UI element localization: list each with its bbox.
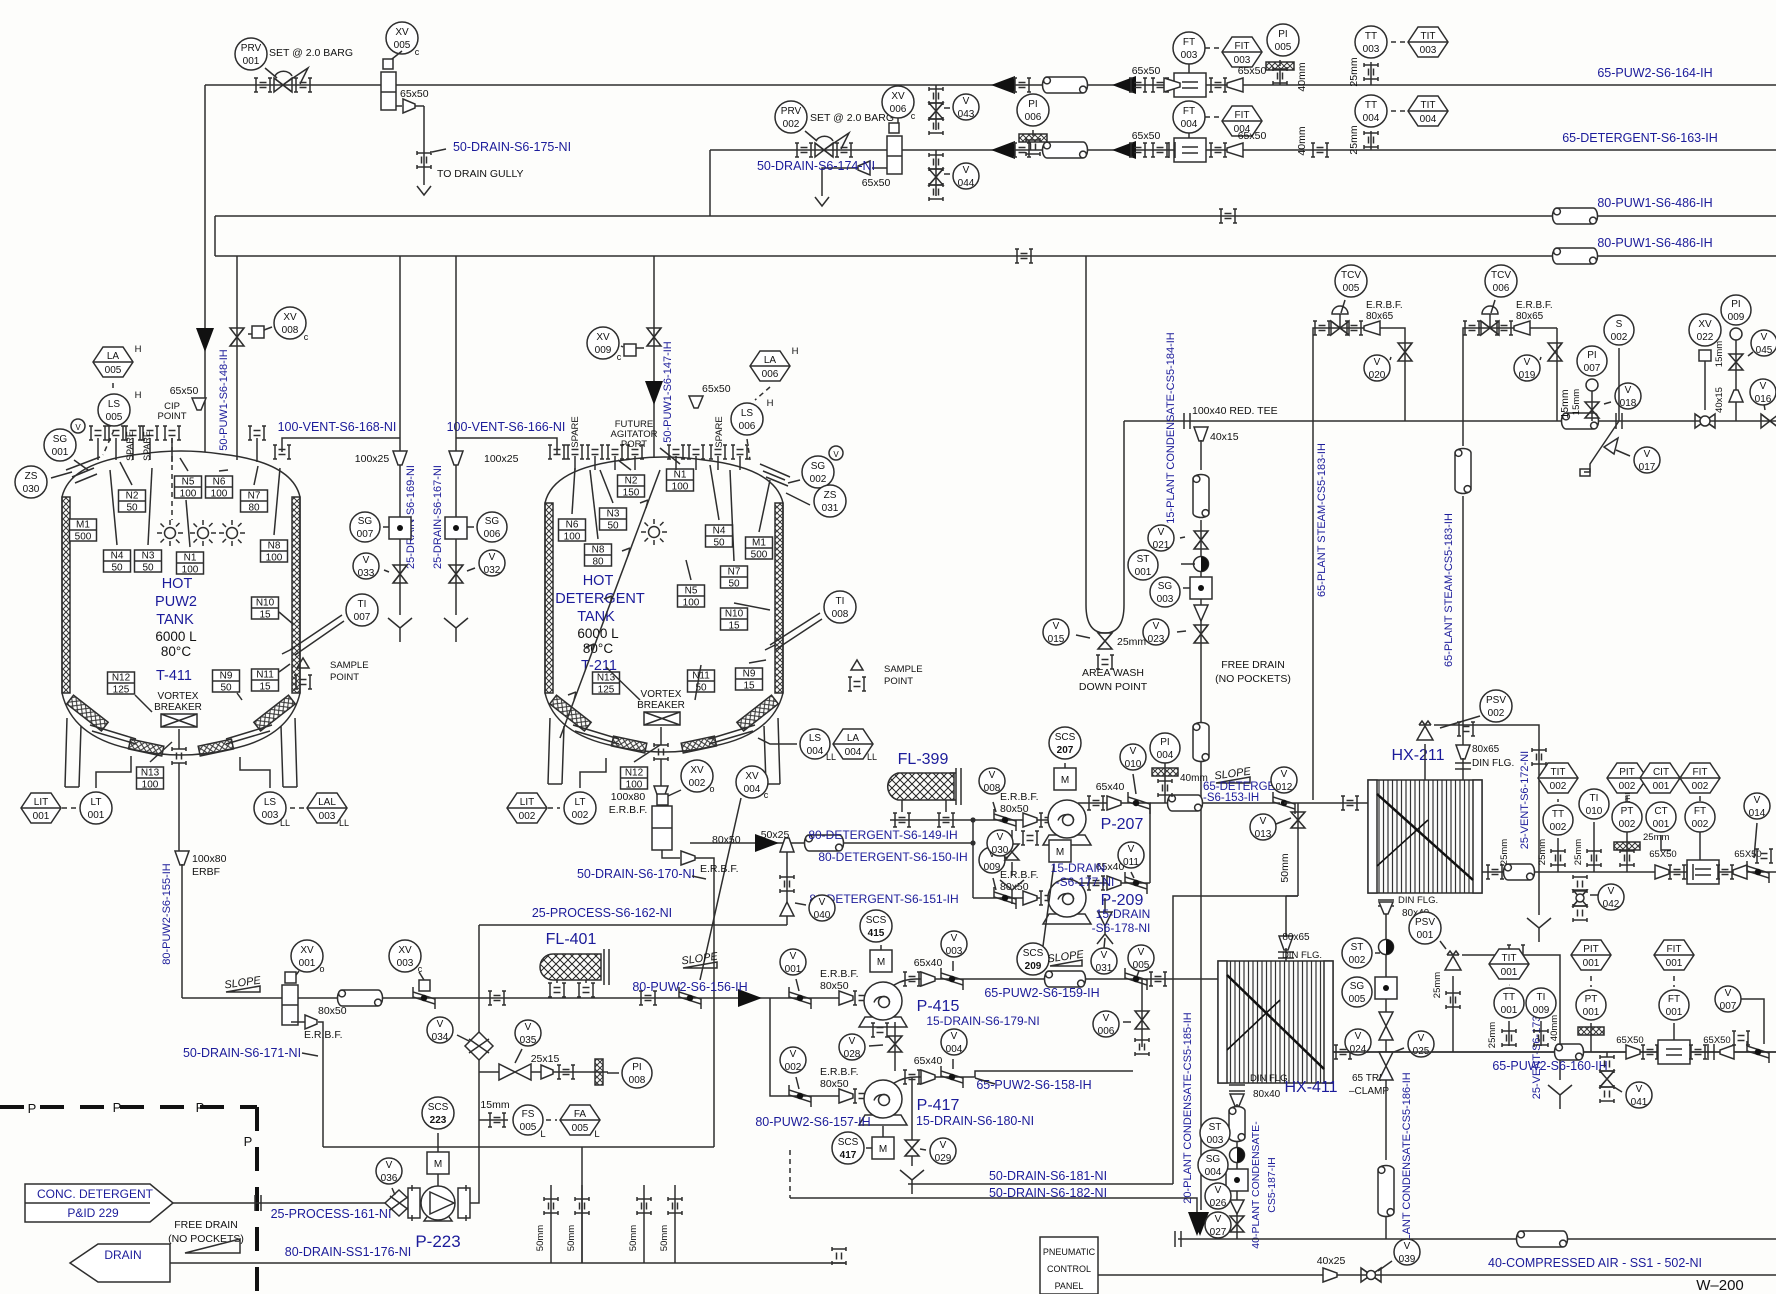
svg-text:013: 013 — [1255, 829, 1272, 840]
svg-text:50mm: 50mm — [535, 1225, 546, 1251]
svg-text:006: 006 — [1025, 112, 1042, 123]
svg-text:PI: PI — [632, 1062, 641, 1073]
svg-text:SG: SG — [1350, 981, 1365, 992]
svg-text:100-VENT-S6-166-NI: 100-VENT-S6-166-NI — [447, 420, 566, 434]
svg-text:80x50: 80x50 — [318, 1005, 347, 1017]
svg-text:100: 100 — [180, 489, 197, 500]
svg-text:L: L — [540, 1129, 545, 1140]
svg-text:100: 100 — [626, 780, 643, 791]
svg-text:FS: FS — [522, 1109, 535, 1120]
svg-text:65x50: 65x50 — [702, 383, 731, 395]
svg-text:100: 100 — [211, 489, 228, 500]
svg-text:V: V — [997, 832, 1004, 843]
svg-text:VORTEX: VORTEX — [158, 691, 199, 702]
svg-text:100: 100 — [142, 780, 159, 791]
svg-text:LA: LA — [847, 733, 860, 744]
svg-text:c: c — [911, 111, 916, 121]
svg-text:40mm: 40mm — [1296, 62, 1308, 91]
svg-text:004: 004 — [1420, 114, 1437, 125]
svg-text:V: V — [363, 555, 370, 566]
svg-text:044: 044 — [958, 178, 975, 189]
svg-text:001: 001 — [1583, 1007, 1600, 1018]
svg-text:FA: FA — [574, 1109, 587, 1120]
svg-text:V: V — [1158, 527, 1165, 538]
svg-text:042: 042 — [1603, 899, 1620, 910]
svg-text:XV: XV — [398, 945, 412, 956]
svg-text:65x50: 65x50 — [1132, 65, 1161, 77]
svg-text:65-PUW2-S6-160-IH: 65-PUW2-S6-160-IH — [1492, 1059, 1607, 1073]
svg-text:o: o — [709, 784, 714, 794]
svg-text:80-PUW2-S6-156-IH: 80-PUW2-S6-156-IH — [632, 980, 747, 994]
svg-text:001: 001 — [1417, 930, 1434, 941]
svg-text:P-207: P-207 — [1101, 816, 1144, 833]
svg-text:020: 020 — [1369, 370, 1386, 381]
svg-text:80-DRAIN-SS1-176-NI: 80-DRAIN-SS1-176-NI — [285, 1245, 411, 1259]
svg-text:002: 002 — [1692, 781, 1709, 792]
svg-text:V: V — [1215, 1185, 1222, 1196]
svg-text:TIT: TIT — [1502, 953, 1517, 964]
svg-text:P: P — [244, 1134, 253, 1149]
svg-text:004: 004 — [807, 746, 824, 757]
svg-text:002: 002 — [810, 474, 827, 485]
svg-text:001: 001 — [1666, 958, 1683, 969]
svg-text:005: 005 — [394, 40, 411, 51]
svg-text:LS: LS — [108, 399, 121, 410]
svg-text:V: V — [1524, 357, 1531, 368]
svg-text:PI: PI — [1731, 299, 1740, 310]
svg-text:TI: TI — [836, 596, 845, 607]
svg-text:N2: N2 — [625, 476, 638, 487]
svg-text:TCV: TCV — [1491, 270, 1511, 281]
svg-text:65-PLANT STEAM-CS5-183-IH: 65-PLANT STEAM-CS5-183-IH — [1316, 443, 1328, 597]
svg-text:LA: LA — [107, 351, 120, 362]
svg-text:007: 007 — [354, 612, 371, 623]
svg-text:024: 024 — [1350, 1044, 1367, 1055]
svg-text:010: 010 — [1586, 806, 1603, 817]
svg-text:FT: FT — [1668, 994, 1680, 1005]
svg-text:022: 022 — [1697, 332, 1714, 343]
svg-text:FT: FT — [1183, 37, 1195, 48]
svg-text:TI: TI — [1590, 793, 1599, 804]
svg-text:006: 006 — [1098, 1026, 1115, 1037]
svg-text:65-PUW2-S6-158-IH: 65-PUW2-S6-158-IH — [976, 1078, 1091, 1092]
svg-text:006: 006 — [762, 369, 779, 380]
svg-text:XV: XV — [283, 312, 297, 323]
svg-text:010: 010 — [1125, 759, 1142, 770]
svg-text:HOT: HOT — [583, 573, 614, 589]
svg-text:E.R.B.F.: E.R.B.F. — [609, 804, 648, 816]
svg-text:N11: N11 — [692, 671, 710, 682]
svg-text:N1: N1 — [674, 470, 687, 481]
svg-text:40-COMPRESSED AIR - SS1 - 502-: 40-COMPRESSED AIR - SS1 - 502-NI — [1488, 1256, 1702, 1270]
svg-text:50mm: 50mm — [628, 1225, 639, 1251]
svg-text:ZS: ZS — [25, 471, 38, 482]
svg-text:FIT: FIT — [1235, 41, 1250, 52]
svg-text:N13: N13 — [141, 768, 160, 779]
svg-text:V: V — [437, 1019, 444, 1030]
svg-text:80: 80 — [592, 557, 604, 568]
svg-text:DETERGENT: DETERGENT — [555, 591, 645, 607]
svg-text:TIT: TIT — [1551, 767, 1566, 778]
svg-text:V: V — [963, 96, 970, 107]
svg-text:031: 031 — [1096, 963, 1113, 974]
svg-text:65x50: 65x50 — [1238, 130, 1267, 142]
svg-text:006: 006 — [484, 529, 501, 540]
svg-text:25mm: 25mm — [1432, 972, 1443, 998]
svg-text:V: V — [1404, 1241, 1411, 1252]
svg-text:008: 008 — [984, 783, 1001, 794]
svg-text:15-DRAIN-S6-180-NI: 15-DRAIN-S6-180-NI — [916, 1114, 1034, 1128]
svg-text:N5: N5 — [182, 477, 195, 488]
svg-text:XV: XV — [690, 765, 704, 776]
svg-text:XV: XV — [1698, 319, 1712, 330]
svg-text:100-VENT-S6-168-NI: 100-VENT-S6-168-NI — [278, 420, 397, 434]
svg-text:M: M — [434, 1159, 442, 1170]
svg-text:25mm: 25mm — [1487, 1022, 1498, 1048]
svg-text:25mm: 25mm — [1348, 57, 1360, 86]
svg-text:50: 50 — [111, 563, 123, 574]
svg-text:PRV: PRV — [241, 43, 262, 54]
svg-text:019: 019 — [1519, 370, 1536, 381]
svg-text:L: L — [594, 1129, 599, 1140]
svg-text:031: 031 — [822, 503, 839, 514]
svg-text:CONTROL: CONTROL — [1047, 1264, 1091, 1274]
svg-text:80-PUW2-S6-155-IH: 80-PUW2-S6-155-IH — [161, 863, 173, 965]
svg-text:20-PLANT CONDENSATE-CS5-185-IH: 20-PLANT CONDENSATE-CS5-185-IH — [1182, 1012, 1194, 1204]
svg-text:029: 029 — [935, 1153, 952, 1164]
svg-text:002: 002 — [1349, 955, 1366, 966]
svg-text:100: 100 — [564, 532, 581, 543]
svg-text:M: M — [1056, 847, 1064, 858]
svg-text:50: 50 — [126, 503, 138, 514]
svg-text:001: 001 — [1501, 1005, 1518, 1016]
svg-text:P-223: P-223 — [415, 1232, 460, 1251]
svg-text:PI: PI — [1028, 99, 1037, 110]
svg-text:25-DRAIN-S6-167-NI: 25-DRAIN-S6-167-NI — [432, 465, 444, 569]
svg-text:15: 15 — [259, 610, 271, 621]
svg-text:P&ID 229: P&ID 229 — [67, 1206, 119, 1220]
svg-text:65x40: 65x40 — [914, 957, 943, 969]
svg-text:50: 50 — [607, 521, 619, 532]
svg-text:M1: M1 — [76, 520, 90, 531]
svg-text:N11: N11 — [256, 670, 274, 681]
svg-text:15mm: 15mm — [1571, 389, 1582, 415]
svg-text:CIT: CIT — [1653, 767, 1669, 778]
svg-text:HOT: HOT — [162, 576, 193, 592]
svg-text:80°C: 80°C — [583, 641, 613, 656]
svg-text:041: 041 — [1631, 1097, 1648, 1108]
svg-text:005: 005 — [105, 365, 122, 376]
svg-text:SG: SG — [358, 516, 373, 527]
svg-text:DIN FLG.: DIN FLG. — [1472, 758, 1514, 769]
svg-text:PANEL: PANEL — [1055, 1281, 1084, 1291]
svg-text:50mm: 50mm — [566, 1225, 577, 1251]
svg-text:125: 125 — [598, 685, 615, 696]
svg-text:009: 009 — [595, 345, 612, 356]
svg-text:006: 006 — [1493, 283, 1510, 294]
svg-text:014: 014 — [1749, 808, 1766, 819]
svg-text:50-DRAIN-S6-182-NI: 50-DRAIN-S6-182-NI — [989, 1186, 1107, 1200]
svg-text:500: 500 — [75, 532, 92, 543]
svg-text:50: 50 — [142, 563, 154, 574]
svg-text:043: 043 — [958, 109, 975, 120]
svg-text:004: 004 — [1181, 119, 1198, 130]
svg-text:026: 026 — [1210, 1198, 1227, 1209]
svg-text:006: 006 — [890, 104, 907, 115]
svg-text:LS: LS — [264, 797, 277, 808]
svg-text:E.R.B.F.: E.R.B.F. — [700, 863, 739, 875]
svg-text:023: 023 — [1148, 634, 1165, 645]
svg-text:15: 15 — [259, 682, 271, 693]
svg-text:80-DETERGENT-S6-149-IH: 80-DETERGENT-S6-149-IH — [808, 828, 957, 842]
svg-text:50-DRAIN-S6-181-NI: 50-DRAIN-S6-181-NI — [989, 1169, 1107, 1183]
svg-text:c: c — [304, 332, 309, 342]
svg-text:c: c — [418, 964, 423, 974]
svg-text:T-411: T-411 — [156, 668, 192, 684]
svg-text:001: 001 — [33, 811, 50, 822]
svg-text:50: 50 — [220, 683, 232, 694]
svg-text:002: 002 — [572, 810, 589, 821]
svg-text:003: 003 — [946, 946, 963, 957]
svg-text:-S6-177-NI: -S6-177-NI — [1056, 875, 1115, 889]
svg-text:TT: TT — [1365, 31, 1377, 42]
svg-text:V: V — [989, 770, 996, 781]
svg-text:033: 033 — [358, 568, 375, 579]
svg-text:E.R.B.F.: E.R.B.F. — [1366, 300, 1403, 311]
svg-text:V: V — [790, 1049, 797, 1060]
svg-text:POINT: POINT — [884, 676, 913, 687]
svg-text:045: 045 — [1756, 345, 1773, 356]
svg-text:003: 003 — [1363, 44, 1380, 55]
svg-text:SCS: SCS — [1023, 948, 1044, 959]
svg-text:N10: N10 — [256, 598, 275, 609]
svg-text:65x50: 65x50 — [170, 385, 199, 397]
svg-text:80-PUW1-S6-486-IH: 80-PUW1-S6-486-IH — [1597, 236, 1712, 250]
svg-text:008: 008 — [832, 609, 849, 620]
svg-text:SCS: SCS — [428, 1102, 449, 1113]
svg-text:417: 417 — [840, 1150, 857, 1161]
svg-text:040: 040 — [814, 910, 831, 921]
svg-text:H: H — [767, 398, 774, 409]
svg-text:V: V — [1130, 746, 1137, 757]
svg-text:M: M — [1061, 775, 1069, 786]
svg-text:25-VENT-S6-172-NI: 25-VENT-S6-172-NI — [1519, 751, 1531, 849]
svg-text:003: 003 — [1157, 594, 1174, 605]
svg-text:-S6-153-IH: -S6-153-IH — [1203, 792, 1259, 804]
svg-text:005: 005 — [1133, 960, 1150, 971]
svg-text:25-PROCESS-161-NI: 25-PROCESS-161-NI — [271, 1207, 392, 1221]
svg-text:002: 002 — [785, 1062, 802, 1073]
svg-text:002: 002 — [783, 119, 800, 130]
svg-text:N9: N9 — [743, 669, 756, 680]
svg-text:TT: TT — [1552, 809, 1564, 820]
svg-text:V: V — [951, 933, 958, 944]
svg-text:SG: SG — [53, 434, 68, 445]
svg-text:PORT: PORT — [621, 439, 647, 450]
svg-text:004: 004 — [845, 747, 862, 758]
svg-text:005: 005 — [520, 1122, 537, 1133]
svg-text:V: V — [1128, 844, 1135, 855]
svg-text:FT: FT — [1694, 806, 1706, 817]
svg-text:50: 50 — [728, 579, 740, 590]
svg-text:V: V — [1418, 1033, 1425, 1044]
svg-text:PT: PT — [1585, 994, 1598, 1005]
svg-text:LIT: LIT — [520, 797, 534, 808]
svg-text:003: 003 — [397, 958, 414, 969]
svg-text:002: 002 — [1550, 822, 1567, 833]
svg-text:50x25: 50x25 — [761, 829, 790, 841]
svg-text:80x65: 80x65 — [1472, 744, 1500, 755]
svg-text:100x25: 100x25 — [355, 453, 390, 465]
svg-text:002: 002 — [1692, 819, 1709, 830]
svg-text:N1: N1 — [184, 553, 197, 564]
svg-text:50: 50 — [713, 538, 725, 549]
svg-text:PI: PI — [1587, 350, 1596, 361]
svg-text:E.R.B.F.: E.R.B.F. — [1516, 300, 1553, 311]
svg-text:030: 030 — [23, 484, 40, 495]
svg-text:100x80: 100x80 — [192, 853, 227, 865]
svg-text:005: 005 — [1349, 994, 1366, 1005]
svg-text:LT: LT — [575, 797, 586, 808]
svg-text:011: 011 — [1123, 857, 1139, 868]
svg-text:002: 002 — [519, 811, 536, 822]
svg-text:XV: XV — [395, 27, 409, 38]
svg-text:002: 002 — [1488, 708, 1505, 719]
svg-text:SCS: SCS — [1055, 732, 1076, 743]
svg-text:100: 100 — [683, 598, 700, 609]
svg-text:XV: XV — [745, 771, 759, 782]
svg-text:65X50: 65X50 — [1616, 1035, 1643, 1046]
svg-text:E.R.B.F.: E.R.B.F. — [1000, 791, 1039, 803]
svg-text:V: V — [1215, 1214, 1222, 1225]
svg-text:150: 150 — [623, 488, 640, 499]
svg-text:032: 032 — [484, 565, 501, 576]
svg-text:005: 005 — [1343, 283, 1360, 294]
svg-text:SET @ 2.0 BARG: SET @ 2.0 BARG — [269, 47, 353, 59]
svg-text:009: 009 — [984, 862, 1001, 873]
svg-text:001: 001 — [1666, 1007, 1683, 1018]
svg-text:004: 004 — [1205, 1167, 1222, 1178]
svg-text:100x80: 100x80 — [611, 791, 646, 803]
svg-text:002: 002 — [1619, 819, 1636, 830]
svg-text:N3: N3 — [607, 509, 620, 520]
svg-text:004: 004 — [1157, 750, 1174, 761]
svg-text:001: 001 — [1501, 967, 1518, 978]
svg-text:039: 039 — [1399, 1254, 1416, 1265]
svg-text:65x50: 65x50 — [1132, 130, 1161, 142]
svg-text:500: 500 — [751, 550, 768, 561]
svg-text:223: 223 — [430, 1115, 447, 1126]
svg-text:V: V — [790, 951, 797, 962]
svg-text:DIN FLG.: DIN FLG. — [1398, 895, 1438, 906]
svg-text:008: 008 — [282, 325, 299, 336]
svg-text:ST: ST — [1209, 1122, 1222, 1133]
svg-text:PIT: PIT — [1619, 767, 1635, 778]
svg-text:N10: N10 — [725, 609, 744, 620]
svg-text:50-DRAIN-S6-171-NI: 50-DRAIN-S6-171-NI — [183, 1046, 301, 1060]
svg-text:003: 003 — [319, 811, 336, 822]
svg-text:6000 L: 6000 L — [155, 629, 197, 644]
svg-text:FIT: FIT — [1235, 110, 1250, 121]
svg-text:V: V — [1636, 1084, 1643, 1095]
svg-text:BREAKER: BREAKER — [154, 702, 202, 713]
svg-text:15: 15 — [743, 681, 755, 692]
svg-text:N9: N9 — [220, 671, 233, 682]
svg-text:80: 80 — [248, 503, 260, 514]
svg-text:15-DRAIN-S6-179-NI: 15-DRAIN-S6-179-NI — [926, 1014, 1039, 1028]
svg-text:80-DETERGENT-S6-150-IH: 80-DETERGENT-S6-150-IH — [818, 850, 967, 864]
svg-text:15mm: 15mm — [1559, 389, 1571, 418]
svg-text:E.R.B.F.: E.R.B.F. — [304, 1029, 343, 1041]
svg-text:65-PUW2-S6-159-IH: 65-PUW2-S6-159-IH — [984, 986, 1099, 1000]
svg-text:POINT: POINT — [330, 672, 359, 683]
svg-text:018: 018 — [1620, 398, 1637, 409]
svg-text:N8: N8 — [592, 545, 605, 556]
svg-text:80-PUW1-S6-486-IH: 80-PUW1-S6-486-IH — [1597, 196, 1712, 210]
svg-text:50-PUW1-S6-147-IH: 50-PUW1-S6-147-IH — [662, 341, 674, 443]
svg-text:LL: LL — [867, 752, 877, 762]
svg-text:E.R.B.F.: E.R.B.F. — [820, 968, 859, 980]
svg-text:207: 207 — [1057, 745, 1074, 756]
svg-text:25mm: 25mm — [1499, 839, 1510, 865]
svg-text:DRAIN: DRAIN — [104, 1248, 141, 1262]
svg-text:N3: N3 — [142, 551, 155, 562]
svg-text:FIT: FIT — [1693, 767, 1708, 778]
svg-text:027: 027 — [1210, 1227, 1227, 1238]
svg-text:FT: FT — [1183, 106, 1195, 117]
svg-text:100: 100 — [182, 565, 199, 576]
svg-text:PRV: PRV — [781, 106, 802, 117]
svg-text:N6: N6 — [213, 477, 226, 488]
svg-text:N12: N12 — [112, 673, 131, 684]
svg-text:028: 028 — [844, 1049, 861, 1060]
svg-text:N5: N5 — [685, 586, 698, 597]
svg-text:V: V — [1754, 795, 1761, 806]
svg-text:V: V — [1760, 381, 1767, 392]
svg-text:65 TRI: 65 TRI — [1352, 1073, 1382, 1084]
svg-text:50-PUW1-S6-148-IH: 50-PUW1-S6-148-IH — [218, 349, 230, 451]
svg-text:007: 007 — [1720, 1001, 1737, 1012]
svg-text:007: 007 — [357, 529, 374, 540]
svg-text:001: 001 — [52, 447, 69, 458]
svg-text:TT: TT — [1365, 100, 1377, 111]
svg-text:50mm: 50mm — [1279, 853, 1291, 882]
svg-text:PSV: PSV — [1415, 917, 1435, 928]
svg-text:25mm: 25mm — [1537, 839, 1548, 865]
svg-text:TANK: TANK — [156, 612, 194, 628]
svg-text:H: H — [135, 344, 142, 355]
svg-text:030: 030 — [992, 845, 1009, 856]
svg-text:LS: LS — [809, 733, 822, 744]
svg-text:65x50: 65x50 — [862, 177, 891, 189]
svg-text:65-PLANT STEAM-CS5-183-IH: 65-PLANT STEAM-CS5-183-IH — [1443, 513, 1455, 667]
svg-text:V: V — [1053, 621, 1060, 632]
svg-text:E.R.B.F.: E.R.B.F. — [820, 1066, 859, 1078]
svg-text:TO DRAIN GULLY: TO DRAIN GULLY — [437, 168, 524, 180]
svg-text:V: V — [1625, 385, 1632, 396]
svg-text:LIT: LIT — [34, 797, 48, 808]
svg-text:003: 003 — [1181, 50, 1198, 61]
svg-text:E.R.B.F.: E.R.B.F. — [1000, 869, 1039, 881]
svg-text:PI: PI — [1278, 29, 1287, 40]
svg-text:40mm: 40mm — [1549, 1015, 1560, 1041]
svg-text:FREE DRAIN: FREE DRAIN — [1221, 659, 1285, 671]
svg-text:40-PLANT CONDENSATE-: 40-PLANT CONDENSATE- — [1250, 1121, 1262, 1249]
svg-text:M: M — [877, 957, 885, 968]
svg-text:LL: LL — [280, 818, 290, 828]
svg-text:(NO POCKETS): (NO POCKETS) — [1215, 673, 1291, 685]
svg-text:016: 016 — [1755, 394, 1772, 405]
